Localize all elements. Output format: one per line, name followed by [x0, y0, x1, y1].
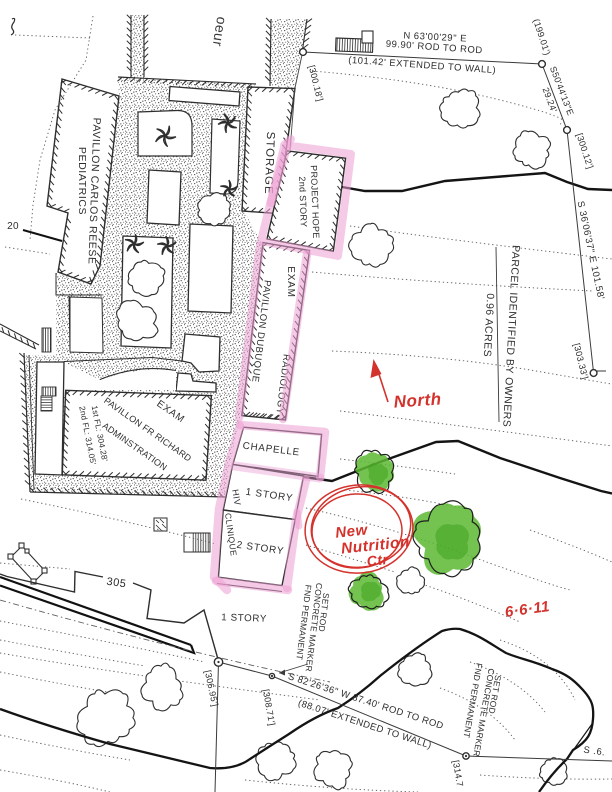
svg-text:20: 20	[7, 221, 19, 232]
svg-text:1 STORY: 1 STORY	[221, 612, 267, 625]
svg-text:EXAM: EXAM	[285, 266, 296, 298]
svg-text:North: North	[393, 389, 442, 411]
svg-text:PEDIATRICS: PEDIATRICS	[76, 147, 88, 215]
svg-text:Ctr: Ctr	[366, 551, 390, 569]
svg-text:2nd STORY: 2nd STORY	[297, 176, 309, 227]
